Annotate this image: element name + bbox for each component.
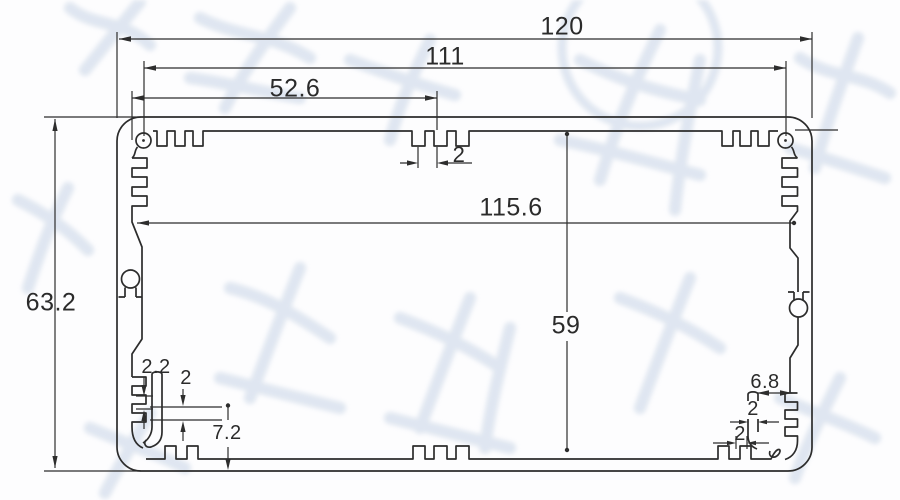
dim-right-boss-wall: 2: [747, 399, 759, 419]
dim-left-boss-gap: 2: [180, 368, 192, 388]
left-wall-slot: [122, 270, 140, 288]
dim-inner-height: 59: [552, 314, 581, 339]
screw-channel-bottom-right: [785, 393, 798, 460]
dim-left-boss-pitch: 2.2: [141, 357, 170, 377]
technical-drawing-page: 120 111 52.6 2 115.6 59 63.2 2.2 2 7.2 6…: [0, 0, 900, 500]
top-inner-surface: [153, 131, 778, 146]
outer-contour: [117, 117, 812, 471]
dim-overall-height: 63.2: [26, 291, 77, 316]
dim-left-boss-height: 7.2: [212, 423, 241, 443]
dim-inner-width: 115.6: [479, 196, 542, 221]
dim-slot-offset: 52.6: [270, 77, 321, 102]
dim-overall-width: 120: [540, 15, 583, 40]
dim-right-boss-width: 6.8: [750, 372, 779, 392]
profile-outline: [117, 117, 812, 471]
dim-mount-spacing: 111: [425, 45, 465, 70]
dimension-lines: [44, 32, 838, 471]
arrowheads: [52, 36, 812, 470]
right-wall-slot: [790, 299, 808, 317]
dim-right-boss-slot: 2: [734, 424, 746, 444]
dim-top-slot-width: 2: [453, 144, 466, 166]
bottom-inner-surface: [146, 446, 780, 459]
profile-drawing: [0, 0, 900, 500]
right-wall-inner: [782, 158, 798, 292]
